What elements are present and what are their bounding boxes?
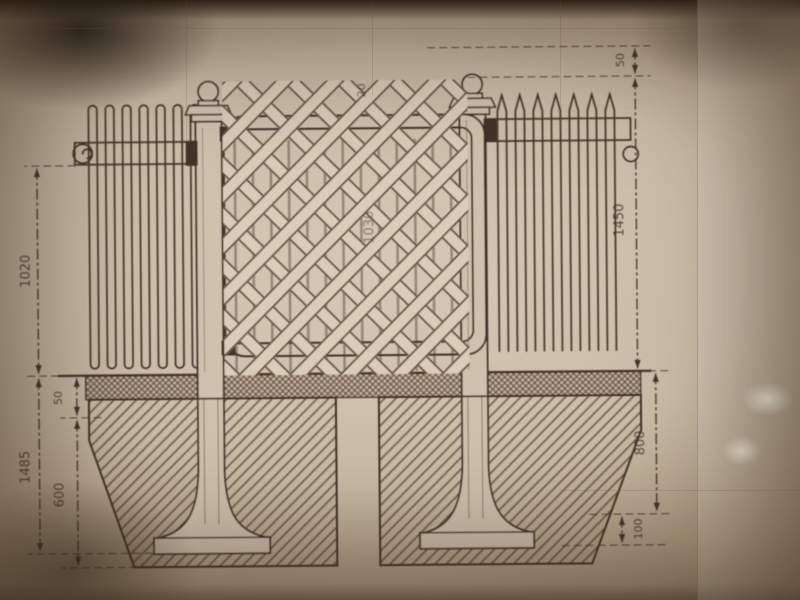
dim-label-foundation-depth-right: 800 (633, 430, 648, 455)
dim-line-1450 (635, 79, 638, 368)
paper-fold-line (372, 0, 373, 95)
paper-sheet-edge (697, 0, 800, 600)
dim-label-post-cap: 50 (614, 53, 627, 67)
dim-label-fence-height: 1020 (19, 255, 34, 288)
dim-label-post-above-ground: 1450 (612, 203, 627, 236)
dim-label-panel-height: 1030 (362, 211, 377, 244)
dim-label-overall-below: 1485 (18, 451, 33, 484)
dim-label-base-slab: 100 (632, 518, 645, 539)
dim-label-topsoil: 50 (52, 391, 65, 405)
dim-label-slat-size: 20 (355, 83, 368, 97)
left-rail-clamp (187, 142, 197, 165)
photo-shadow-bottom (0, 584, 800, 600)
paper-fold-line (560, 0, 561, 130)
right-rail-clamp (484, 119, 495, 141)
lattice-slats (198, 55, 501, 398)
photo-of-technical-drawing: 1020 1485 50 600 50 1450 800 100 1030 20 (0, 0, 800, 600)
paper-fold-line (186, 0, 187, 140)
photo-shadow-top-left (0, 0, 220, 110)
paper-fold-line (0, 28, 697, 29)
paper-fold-line (560, 490, 800, 491)
dim-line-1020 (37, 169, 39, 373)
photo-shadow-bottom-left (0, 480, 200, 600)
